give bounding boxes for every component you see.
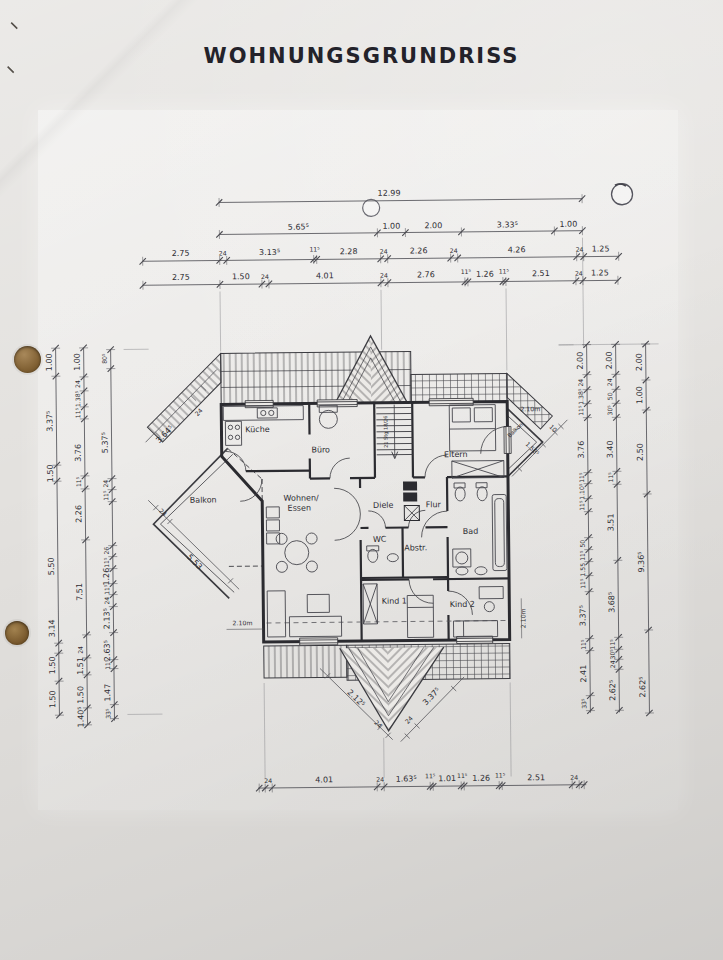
dimension-label: 30⁵: [606, 405, 613, 416]
dimension-label: 11⁵: [103, 584, 110, 595]
dimension-label: 3.40: [606, 440, 615, 458]
dimension-label: 11⁵: [425, 772, 436, 779]
dimension-label: 1.00: [45, 353, 54, 371]
dimension-label: 11⁵: [577, 405, 584, 416]
dimension-label: 24: [570, 774, 578, 781]
dimension-label: 2.00: [605, 351, 614, 369]
dimension-label: 1.26: [102, 568, 111, 586]
dimension-label: 11⁵: [580, 639, 587, 650]
dimension-label: 3.37⁵: [45, 411, 54, 432]
dimension-label: 2.75: [172, 273, 190, 282]
dimension-label: 9.36⁵: [637, 552, 646, 573]
dimension-label: 1.50: [48, 690, 57, 708]
dimension-label: 24: [606, 378, 613, 386]
dimension-label: 1.50: [232, 272, 250, 281]
dimension-label: 24: [158, 507, 169, 518]
dimension-label: 3.51: [606, 513, 615, 531]
dimension-label: 2.00: [576, 352, 585, 370]
dimension-label: 1.26: [472, 774, 490, 783]
dimension-label: 1.47: [103, 684, 112, 702]
dimension-label: 11⁵: [461, 268, 472, 275]
dimension-label: 11⁵: [104, 659, 111, 670]
dimension-label: 3.13⁵: [259, 248, 280, 257]
staple-marks: [7, 23, 18, 73]
lintel-note-right: 2.10m: [519, 608, 526, 628]
dimension-label: 3.37⁵: [578, 605, 587, 626]
dimension-label: 1.50: [48, 656, 57, 674]
dimension-label: 3.33⁵: [497, 220, 518, 229]
dimension-label: 3.76: [74, 444, 83, 462]
dimension-label: 1.25: [592, 244, 610, 253]
dimension-label: 11⁵: [102, 490, 109, 501]
dimension-label: 2.62⁵: [638, 677, 647, 698]
dimension-label: 11⁵: [103, 557, 110, 568]
dimension-label: 2.75: [172, 249, 190, 258]
dimension-label: 12.99: [377, 189, 400, 198]
dimension-label: 26: [103, 547, 110, 555]
room-label-buero: Büro: [311, 445, 330, 454]
balcony-left-outline: [153, 448, 264, 614]
dimension-label: 2.76: [417, 270, 435, 279]
dimension-label: 2.41: [579, 665, 588, 683]
room-label-balkon-left: Balkon: [190, 496, 217, 505]
dimension-label: 80⁵: [101, 353, 108, 364]
room-label-abstr: Abstr.: [404, 543, 427, 552]
dimension-label: 1.00: [635, 386, 644, 404]
room-label-wohnen-2: Essen: [288, 504, 311, 513]
dimension-label: 1.50: [46, 464, 55, 482]
dimension-label: 3.76: [577, 441, 586, 459]
dimension-label: 1.50: [76, 686, 85, 704]
dimension-label: 4.26: [508, 245, 526, 254]
pen-circle-mark-left: [363, 199, 380, 216]
dimension-label: 24: [403, 714, 414, 725]
dimension-label: 2.62⁵: [608, 680, 617, 701]
dimension-label: 5.50: [47, 557, 56, 575]
dimension-label: 24: [380, 248, 388, 255]
dimension-label: 24: [576, 246, 584, 253]
dimension-label: 24: [103, 597, 110, 605]
room-label-flur: Flur: [426, 500, 442, 509]
dimension-label: 3.14: [47, 619, 56, 637]
dimension-label: 24: [264, 777, 272, 784]
dimension-label: 7.51: [75, 583, 84, 601]
room-label-kind2: Kind 2: [450, 600, 475, 609]
room-label-eltern: Eltern: [444, 450, 468, 459]
dimension-label: 3.37⁵: [421, 686, 442, 707]
dimension-label: 1.26: [476, 270, 494, 279]
room-label-diele: Diele: [373, 501, 394, 510]
dimension-label: 11⁵: [579, 578, 586, 589]
lintel-tick-lines: [226, 598, 521, 641]
dimension-label: 1.00: [382, 222, 400, 231]
dimension-label: 2.51: [532, 269, 550, 278]
dimension-label: 1.55: [579, 563, 586, 577]
dimension-label: 11⁵: [579, 550, 586, 561]
dimension-label: 10: [548, 423, 559, 434]
dimension-label: 24: [74, 380, 81, 388]
dimension-label: 11⁵: [75, 476, 82, 487]
dimension-label: 1.40⁵: [76, 706, 85, 727]
balcony-hatch-bottom: [264, 643, 511, 732]
dimension-label: 24: [380, 272, 388, 279]
dimension-label: 11⁵: [578, 500, 585, 511]
dimension-label: 24: [609, 660, 616, 668]
dimension-label: 24: [575, 270, 583, 277]
dimension-label: 2.26: [410, 246, 428, 255]
dimension-label: 2.28: [340, 247, 358, 256]
dimension-label: 1.25: [591, 268, 609, 277]
dimension-label: 24: [261, 273, 269, 280]
dimension-label: 1.58⁵: [524, 440, 541, 457]
dimension-label: 1.63⁵: [396, 774, 417, 783]
dimension-label: 2.00: [424, 221, 442, 230]
dimension-label: 1.10⁵: [578, 483, 585, 500]
dimension-label: 30⁵: [609, 649, 616, 660]
floor-plan-drawing: Küche Büro Eltern Balkon Balkon Wohnen/ …: [0, 0, 723, 960]
room-label-wohnen-1: Wohnen/: [284, 493, 320, 502]
dimension-label: 50: [606, 392, 613, 400]
dimension-label: 1.51: [76, 657, 85, 675]
dimension-chains: 12.995.65⁵1.002.003.33⁵1.002.75243.13⁵11…: [43, 186, 655, 795]
dimension-label: 24: [376, 776, 384, 783]
dimension-label: 24: [450, 247, 458, 254]
dimension-label: 2.12⁵: [345, 688, 366, 709]
dimension-label: 2.50: [636, 443, 645, 461]
photographed-floor-plan-page: WOHNUNGSGRUNDRISS: [0, 0, 723, 960]
room-label-wc: WC: [373, 535, 387, 544]
dimension-label: 11⁵: [578, 472, 585, 483]
dimension-label: 24: [102, 480, 109, 488]
dimension-label: 2.51: [527, 773, 545, 782]
shaft-chimney: [403, 481, 419, 520]
dimension-label: 1.38⁵: [577, 388, 584, 405]
dimension-label: 3.68⁵: [607, 592, 616, 613]
dimension-label: 11⁵: [609, 639, 616, 650]
dimension-label: 2.63⁵: [103, 640, 112, 661]
dimension-label: 11⁵: [74, 407, 81, 418]
dimension-label: 11⁵: [495, 772, 506, 779]
dimension-label: 24: [219, 249, 227, 256]
lintel-note-left: 2.10m: [233, 619, 253, 626]
dimension-label: 5.65⁵: [288, 223, 309, 232]
room-label-kueche: Küche: [245, 425, 269, 434]
dimension-label: 50: [579, 540, 586, 548]
dimension-label: 24: [77, 646, 84, 654]
dimension-label: 2.00: [635, 353, 644, 371]
dimension-label: 11⁵: [499, 267, 510, 274]
dimension-label: 1.38⁵: [74, 390, 81, 407]
pen-circle-mark-right: [611, 184, 632, 205]
dimension-label: 1.01: [438, 774, 456, 783]
room-label-kind1: Kind 1: [382, 597, 407, 606]
dimension-label: 4.01: [315, 775, 333, 784]
lintel-note-balkon: 2.10m: [520, 405, 540, 412]
dimension-label: 33⁵: [580, 698, 587, 709]
dimension-label: 5.37⁵: [100, 432, 109, 453]
dimension-label: 2.26: [74, 505, 83, 523]
dimension-label: 1.00: [559, 220, 577, 229]
room-label-bad: Bad: [463, 527, 479, 536]
dimension-label: 2.13⁵: [102, 608, 111, 629]
dimension-label: 1.00: [73, 353, 82, 371]
dimension-label: 33⁵: [104, 708, 111, 719]
dimension-label: 11⁵: [607, 472, 614, 483]
dimension-label: 11⁵: [309, 245, 320, 252]
dimension-label: 5.53: [185, 553, 204, 572]
dimension-label: 4.01: [316, 271, 334, 280]
dimension-label: 24: [577, 379, 584, 387]
dimension-label: 11⁵: [457, 772, 468, 779]
